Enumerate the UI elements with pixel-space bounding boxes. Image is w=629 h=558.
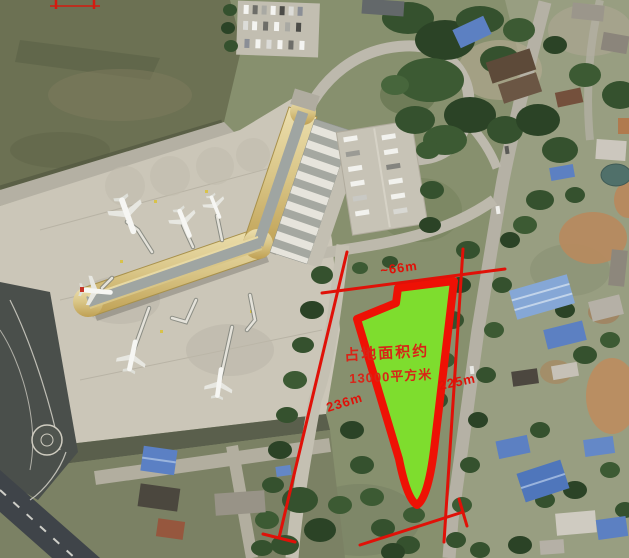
satellite-image: ~66m 225m 236m 占地面积约 13000平方米 [0, 0, 629, 558]
parking-lot-top [236, 1, 320, 58]
pond [601, 164, 629, 186]
parking-lot-mid [336, 121, 427, 236]
compass-pad [32, 425, 62, 455]
red-tail [80, 287, 84, 292]
